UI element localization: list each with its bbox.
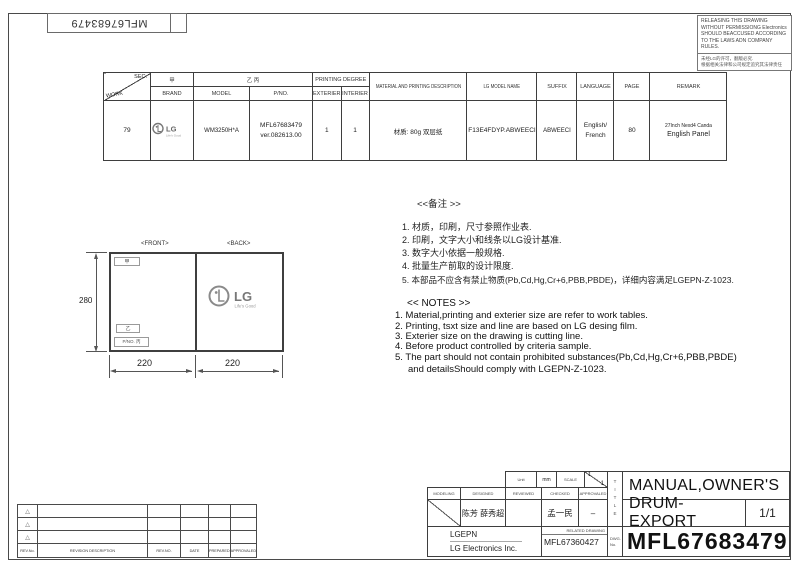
width-dimension-line-front bbox=[113, 371, 192, 372]
related-drawing-number: MFL67360427 bbox=[542, 535, 607, 556]
modeling-signature-cell bbox=[427, 499, 461, 527]
note-zh-line: 5. 本部品不应含有禁止物质(Pb,Cd,Hg,Cr+6,PBB,PBDE)，详… bbox=[402, 274, 734, 286]
scale-label-cell: SCALE bbox=[556, 471, 585, 488]
width-dimension-value-back: 220 bbox=[224, 358, 241, 368]
note-zh-line: 1. 材质，印刷，尺寸参照作业表. bbox=[402, 220, 532, 233]
spec-cell-remark-line1: 27Inch Nexd4 Canda bbox=[650, 123, 726, 129]
note-en-line: and detailsShould comply with LGEPN-Z-10… bbox=[408, 364, 607, 375]
spec-header-sec-work: SEC. WORK bbox=[104, 73, 151, 101]
revision-header-approvaled: APPROVALED bbox=[230, 544, 256, 558]
company-code: LGEPN bbox=[450, 530, 477, 539]
revision-empty-cell bbox=[38, 505, 148, 518]
spec-cell-pno-line1: MFL67683479 bbox=[250, 121, 312, 131]
note-zh-line: 4. 批量生产前取的设计限度. bbox=[402, 259, 514, 272]
lg-logo-text: LG bbox=[234, 289, 252, 304]
part-number-cell: MFL67683479 bbox=[622, 526, 790, 557]
spec-cell-lg-model-name: F13E4FDYP.ABWEECI bbox=[467, 101, 537, 161]
revision-empty-cell bbox=[38, 531, 148, 544]
back-panel-label: <BACK> bbox=[227, 241, 250, 247]
revision-marker-icon: △ bbox=[18, 505, 38, 518]
revision-empty-cell bbox=[181, 518, 209, 531]
spec-cell-suffix: ABWEECI bbox=[537, 101, 577, 161]
dimension-extension-line bbox=[109, 355, 110, 378]
approvaled-signature-cell: – bbox=[578, 499, 608, 527]
spec-cell-brand: LG Life's Good bbox=[151, 101, 194, 161]
spec-table: SEC. WORK 甲 乙 丙 PRINTING DEGREE MATERIAL… bbox=[103, 72, 727, 161]
revision-header-rev-no: REV.No. bbox=[18, 544, 38, 558]
scale-numerator: 1 bbox=[588, 472, 591, 478]
arrow-left-icon bbox=[110, 369, 116, 373]
front-panel-yi-box: 乙 bbox=[116, 324, 140, 333]
spec-cell-remark: 27Inch Nexd4 Canda English Panel bbox=[650, 101, 727, 161]
revision-empty-cell bbox=[230, 518, 256, 531]
note-zh-line: 2. 印刷，文字大小和线条以LG设计基准. bbox=[402, 233, 562, 246]
title-vertical-text: TITLE bbox=[613, 479, 618, 519]
spec-header-language: LANGUAGE bbox=[577, 73, 614, 101]
note-en-line: 1. Material,printing and exterier size a… bbox=[395, 310, 648, 321]
spec-cell-work: 79 bbox=[104, 101, 151, 161]
lg-logo-tagline: Life's Good bbox=[235, 304, 257, 309]
spec-header-material: MATERIAL AND PRINTING DESCRIPTION bbox=[369, 73, 467, 101]
title-vertical-cell: TITLE bbox=[607, 471, 623, 527]
front-panel-jia-box: 甲 bbox=[114, 257, 140, 266]
revision-empty-cell bbox=[148, 531, 181, 544]
dimension-extension-line bbox=[282, 355, 283, 378]
release-notice-chinese: 未经LG的许可，翻版必究. 根据相关法律和公司规定追究其法律责任 bbox=[698, 54, 791, 71]
drawing-sheet: MFL67683479 RELEASING THIS DRAWING WITHO… bbox=[0, 0, 802, 567]
arrow-left-icon bbox=[197, 369, 203, 373]
lg-logo-small-icon: LG Life's Good bbox=[151, 121, 193, 139]
dwg-label-line2: No. bbox=[610, 542, 616, 548]
spec-header-printing-degree: PRINTING DEGREE bbox=[313, 73, 370, 87]
width-dimension-line-back bbox=[200, 371, 279, 372]
spec-cell-page: 80 bbox=[614, 101, 650, 161]
unit-value-cell: mm bbox=[536, 471, 557, 488]
spec-header-page: PAGE bbox=[614, 73, 650, 101]
notes-en-header: << NOTES >> bbox=[407, 298, 470, 309]
stamp-extension bbox=[170, 13, 187, 33]
stamp-box: MFL67683479 bbox=[47, 13, 171, 33]
spec-header-work: WORK bbox=[106, 91, 124, 100]
revision-empty-cell bbox=[230, 531, 256, 544]
revision-empty-cell bbox=[209, 531, 231, 544]
spec-header-brand: BRAND bbox=[151, 87, 194, 101]
revision-marker-icon: △ bbox=[18, 531, 38, 544]
spec-header-brand-cn: 甲 bbox=[151, 73, 194, 87]
spec-header-sec: SEC. bbox=[134, 74, 147, 80]
spec-cell-language-line2: French bbox=[577, 131, 613, 141]
arrow-right-icon bbox=[186, 369, 192, 373]
release-notice-english: RELEASING THIS DRAWING WITHOUT PERMISSIO… bbox=[698, 16, 791, 54]
revision-empty-cell bbox=[230, 505, 256, 518]
spec-header-model: MODEL bbox=[194, 87, 250, 101]
revision-empty-cell bbox=[148, 505, 181, 518]
lg-logo-small-tagline: Life's Good bbox=[166, 133, 181, 137]
arrow-down-icon bbox=[94, 346, 98, 352]
spec-header-suffix: SUFFIX bbox=[537, 73, 577, 101]
front-panel-label: <FRONT> bbox=[141, 241, 169, 247]
note-zh-line: 3. 数字大小依据一般规格. bbox=[402, 246, 505, 259]
arrow-right-icon bbox=[273, 369, 279, 373]
revision-empty-cell bbox=[181, 531, 209, 544]
revision-header-prepared: PREPARED bbox=[209, 544, 231, 558]
company-name: LG Electronics Inc. bbox=[450, 544, 517, 553]
spec-header-model-cn: 乙 丙 bbox=[194, 73, 313, 87]
spec-header-remark: REMARK bbox=[650, 73, 727, 101]
spec-header-lg-model-name: LG MODEL NAME bbox=[467, 73, 537, 101]
stamp-number: MFL67683479 bbox=[71, 17, 147, 29]
spec-header-pno: P/NO. bbox=[250, 87, 313, 101]
spec-cell-pno-line2: ver.082613.00 bbox=[250, 131, 312, 141]
note-en-line: 5. The part should not contain prohibite… bbox=[395, 352, 737, 363]
revision-empty-cell bbox=[209, 505, 231, 518]
scale-value-cell: 1 1 bbox=[584, 471, 608, 488]
unit-label-cell: Unit bbox=[505, 471, 537, 488]
spec-cell-remark-line2: English Panel bbox=[650, 131, 726, 138]
spec-header-material-text: MATERIAL AND PRINTING DESCRIPTION bbox=[375, 84, 460, 90]
checked-signature-cell: 孟一民 bbox=[541, 499, 579, 527]
dimension-extension-line bbox=[195, 355, 196, 378]
spec-header-exterier: EXTERIER bbox=[313, 87, 342, 101]
dwg-no-cell: DWG. No. bbox=[607, 526, 623, 557]
height-dimension-value: 280 bbox=[78, 296, 93, 305]
spec-cell-language-line1: English/ bbox=[577, 121, 613, 131]
related-drawing-label: RELATED DRAWING bbox=[542, 527, 607, 535]
lg-logo-icon: LG Life's Good bbox=[208, 282, 278, 312]
spec-cell-pno: MFL67683479 ver.082613.00 bbox=[250, 101, 313, 161]
spec-cell-interier: 1 bbox=[341, 101, 369, 161]
document-title-line2: DRUM-EXPORT bbox=[622, 499, 746, 527]
arrow-up-icon bbox=[94, 253, 98, 259]
lg-logo-small-text: LG bbox=[166, 124, 177, 133]
designed-signature-cell: 陈芳 薛秀超 bbox=[460, 499, 506, 527]
front-panel-pno-box: P/NO. 丙 bbox=[114, 337, 149, 347]
spec-cell-language: English/ French bbox=[577, 101, 614, 161]
notes-zh-header: <<备注 >> bbox=[417, 196, 461, 210]
height-dimension-line bbox=[96, 256, 97, 348]
release-notice-box: RELEASING THIS DRAWING WITHOUT PERMISSIO… bbox=[697, 15, 792, 71]
revision-empty-cell bbox=[148, 518, 181, 531]
revision-header-rev-no2: REV.NO. bbox=[148, 544, 181, 558]
company-divider bbox=[450, 541, 522, 542]
note-en-line: 4. Before product controlled by criteria… bbox=[395, 341, 591, 352]
revision-empty-cell bbox=[209, 518, 231, 531]
sheet-number-cell: 1/1 bbox=[745, 499, 790, 527]
revision-empty-cell bbox=[181, 505, 209, 518]
width-dimension-value-front: 220 bbox=[136, 358, 153, 368]
spec-header-interier: INTERIER bbox=[341, 87, 369, 101]
spec-header-lg-model-name-text: LG MODEL NAME bbox=[484, 84, 521, 90]
revision-table: △ △ △ REV.No. REVISION DESCRIPTION REV.N… bbox=[17, 504, 257, 558]
company-cell: LGEPN LG Electronics Inc. bbox=[427, 526, 542, 557]
revision-header-description: REVISION DESCRIPTION bbox=[38, 544, 148, 558]
revision-empty-cell bbox=[38, 518, 148, 531]
release-notice-zh-line2: 根据相关法律和公司规定追究其法律责任 bbox=[701, 62, 788, 68]
spec-cell-material: 材质: 80g 双层纸 bbox=[369, 101, 467, 161]
reviewed-signature-cell bbox=[505, 499, 542, 527]
spec-cell-model: WM3250H*A bbox=[194, 101, 250, 161]
spec-cell-exterier: 1 bbox=[313, 101, 342, 161]
related-drawing-cell: RELATED DRAWING MFL67360427 bbox=[541, 526, 608, 557]
revision-header-date: DATE bbox=[181, 544, 209, 558]
revision-marker-icon: △ bbox=[18, 518, 38, 531]
